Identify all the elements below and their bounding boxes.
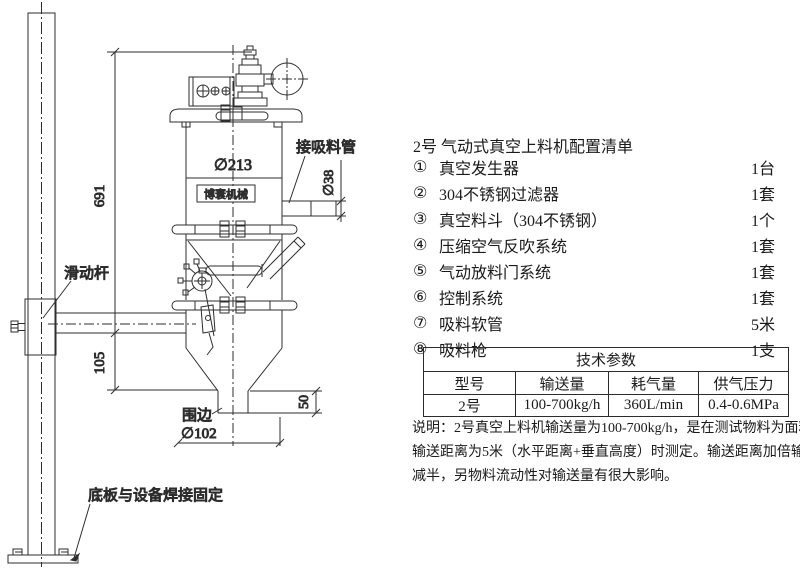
dim-inlet-diameter: ∅38 — [322, 170, 337, 196]
dim-body-diameter: ∅213 — [214, 157, 252, 174]
item-name: 控制系统 — [439, 285, 503, 309]
spec-value-capacity: 100-700kg/h — [516, 395, 609, 417]
spec-value-air-consumption: 360L/min — [609, 395, 699, 417]
silencer-ball — [264, 58, 308, 100]
skirt-label: 围边 — [182, 407, 212, 424]
item-number: ④ — [413, 235, 439, 255]
list-item: ⑥ 控制系统 1套 — [413, 284, 775, 310]
list-item: ⑤ 气动放料门系统 1套 — [413, 258, 775, 284]
note-line: 减半，另物料流动性对输送量有很大影响。 — [412, 465, 800, 489]
item-qty: 1个 — [751, 207, 775, 231]
item-number: ① — [413, 157, 439, 177]
list-item: ③ 真空料斗（304不锈钢） 1个 — [413, 206, 775, 232]
spec-value-model: 2号 — [424, 395, 516, 417]
lower-barrel-cone — [186, 310, 282, 391]
item-number: ⑥ — [413, 287, 439, 307]
item-qty: 1台 — [751, 155, 775, 179]
discharge-valve — [178, 259, 215, 355]
list-item: ② 304不锈钢过滤器 1套 — [413, 180, 775, 206]
item-name: 真空料斗（304不锈钢） — [439, 207, 607, 231]
suction-pipe-label: 接吸料管 — [296, 139, 356, 156]
dim-outlet-diameter: ∅102 — [181, 426, 217, 442]
item-name: 304不锈钢过滤器 — [439, 181, 559, 205]
spec-header-capacity: 输送量 — [516, 372, 609, 395]
spec-table: 技术参数 型号 输送量 耗气量 供气压力 2号 100-700kg/h 360L… — [423, 347, 789, 417]
spec-value-air-pressure: 0.4-0.6MPa — [699, 395, 789, 417]
suction-inlet — [282, 201, 336, 216]
base-plate — [8, 549, 78, 563]
item-name: 真空发生器 — [439, 155, 519, 179]
dim-total-height: 691 — [92, 185, 108, 208]
dimension-38 — [336, 160, 346, 222]
inlet-angled-pipe — [263, 237, 305, 279]
clamp-band-upper — [172, 221, 297, 237]
item-number: ③ — [413, 209, 439, 229]
actuator-cylinder — [199, 264, 262, 277]
support-pole — [28, 2, 55, 567]
vacuum-feeder-spec-sheet: 691 105 — [0, 0, 800, 573]
vacuum-generator — [233, 46, 267, 106]
item-qty: 1套 — [751, 259, 775, 283]
note-paragraph: 说明：2号真空上料机输送量为100-700kg/h，是在测试物料为面粉， 输送距… — [412, 417, 800, 489]
logo-text: 博寰机械 — [204, 187, 248, 201]
spec-header-air-consumption: 耗气量 — [609, 372, 699, 395]
item-name: 压缩空气反吹系统 — [439, 233, 567, 257]
control-box — [189, 77, 234, 106]
spec-header-model: 型号 — [424, 372, 516, 395]
base-weld-leader — [71, 504, 90, 561]
note-line: 输送距离为5米（水平距离+垂直高度）时测定。输送距离加倍输送量 — [412, 441, 800, 465]
item-number: ⑦ — [413, 313, 439, 333]
parts-list: ① 真空发生器 1台 ② 304不锈钢过滤器 1套 ③ 真空料斗（304不锈钢）… — [413, 154, 775, 362]
item-qty: 1套 — [751, 285, 775, 309]
dim-arm-height: 105 — [92, 352, 108, 375]
support-arm — [48, 313, 196, 333]
list-item: ④ 压缩空气反吹系统 1套 — [413, 232, 775, 258]
item-name: 气动放料门系统 — [439, 259, 551, 283]
item-name: 吸料软管 — [439, 311, 503, 335]
dim-skirt-height: 50 — [297, 395, 312, 409]
sliding-rod-label: 滑动杆 — [64, 265, 109, 282]
spec-table-title: 技术参数 — [424, 348, 789, 372]
note-line: 说明：2号真空上料机输送量为100-700kg/h，是在测试物料为面粉， — [412, 417, 800, 441]
spec-header-air-pressure: 供气压力 — [699, 372, 789, 395]
discharge-stub — [218, 391, 280, 413]
sliding-clamp — [11, 299, 56, 355]
base-weld-label: 底板与设备焊接固定 — [88, 486, 223, 504]
suction-pipe-leader — [289, 156, 305, 203]
list-item: ① 真空发生器 1台 — [413, 154, 775, 180]
list-item: ⑦ 吸料软管 5米 — [413, 310, 775, 336]
clamp-band-lower — [172, 297, 297, 313]
item-number: ② — [413, 183, 439, 203]
item-qty: 5米 — [751, 311, 775, 335]
item-qty: 1套 — [751, 181, 775, 205]
item-qty: 1套 — [751, 233, 775, 257]
item-number: ⑤ — [413, 261, 439, 281]
